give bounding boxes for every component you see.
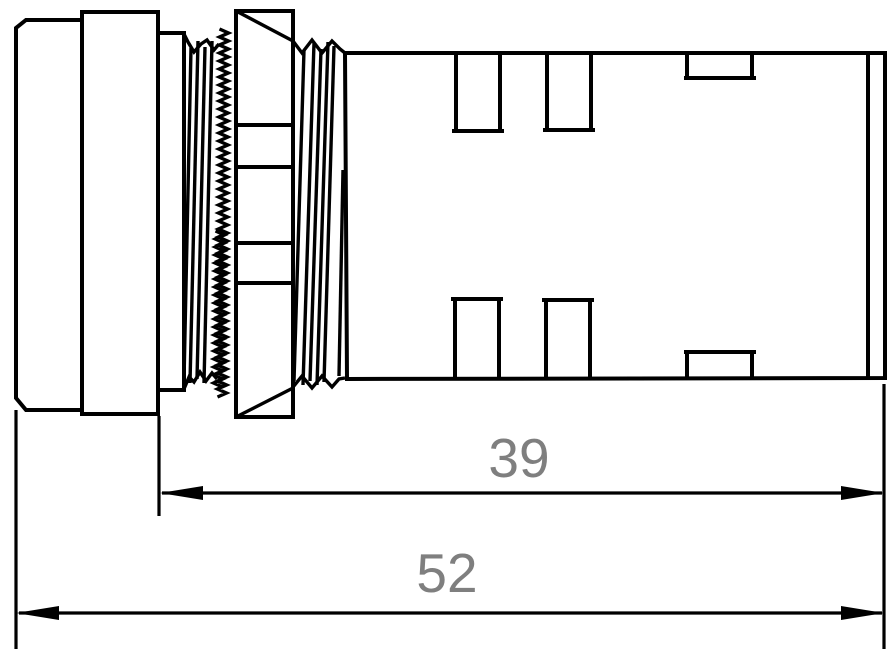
gasket-washer bbox=[158, 33, 184, 390]
nut-chamfer-bottom bbox=[238, 388, 293, 416]
nut-outline bbox=[236, 11, 293, 417]
front-bezel bbox=[16, 20, 82, 410]
bezel-flange-ring bbox=[82, 12, 158, 414]
thread-crest-profile-top-left bbox=[184, 34, 219, 52]
dimension-label-39: 39 bbox=[488, 427, 549, 489]
dimension-52: 52 bbox=[16, 384, 884, 649]
terminal-tab-top bbox=[684, 53, 756, 78]
arrowhead-left-39 bbox=[160, 486, 203, 500]
thread-line bbox=[294, 50, 304, 381]
arrowhead-right-52 bbox=[841, 606, 884, 620]
arrowhead-right-39 bbox=[841, 486, 884, 500]
bezel-flange-ring-outline bbox=[82, 12, 158, 414]
arrowhead-left-52 bbox=[16, 606, 59, 620]
gasket-washer-outline bbox=[158, 33, 184, 390]
mounting-notch-top-2 bbox=[543, 53, 595, 130]
hex-mounting-nut bbox=[236, 11, 293, 417]
dimension-label-52: 52 bbox=[416, 542, 477, 604]
thread-section-right bbox=[293, 40, 345, 388]
indicator-light-side-view-drawing: 39 52 bbox=[0, 0, 893, 661]
thread-crest-profile-bottom-right bbox=[293, 376, 345, 388]
body-outline bbox=[345, 53, 885, 379]
thread-crest-profile-top-right bbox=[293, 40, 345, 53]
mounting-notch-bottom-1 bbox=[451, 299, 503, 377]
thread-line-short bbox=[339, 170, 343, 376]
technical-drawing-canvas: 39 52 bbox=[0, 0, 893, 661]
mounting-notch-bottom-2 bbox=[542, 300, 594, 377]
serrated-lock-washer bbox=[214, 29, 229, 397]
nut-chamfer-top bbox=[238, 12, 293, 41]
terminal-tab-bottom bbox=[684, 352, 756, 377]
mounting-notch-top-1 bbox=[452, 53, 504, 131]
rear-housing-body bbox=[345, 53, 885, 379]
dimension-39: 39 bbox=[159, 416, 884, 516]
front-bezel-outline bbox=[16, 20, 82, 410]
